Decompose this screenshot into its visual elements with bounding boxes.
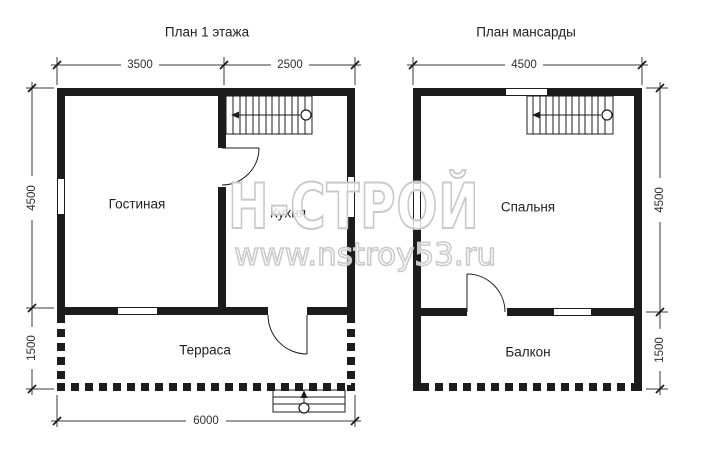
ff-doors: [222, 148, 307, 354]
entry-steps: [273, 390, 345, 413]
ff-interior-wall-lower: [218, 187, 226, 307]
kitchen-label: Кухня: [270, 206, 306, 221]
floor-plan-drawing: План 1 этажа: [0, 0, 701, 450]
ff-dimensions-left: 4500 1500: [25, 82, 54, 395]
ff-dim-2500-label: 2500: [277, 59, 303, 71]
first-floor-walls: [57, 88, 355, 315]
ff-dim-4500-label: 4500: [26, 185, 38, 211]
attic-doors: [467, 274, 505, 312]
entry-steps-start-circle: [299, 403, 309, 413]
ff-dim-1500-label: 1500: [26, 335, 38, 361]
terrace-label: Терраса: [179, 343, 231, 358]
ff-dim-top-extension-lines: [57, 57, 355, 85]
entry-steps-treads: [273, 397, 345, 404]
at-dim-1500-side-label: 1500: [654, 337, 666, 363]
floor-plans-canvas: План 1 этажа: [0, 0, 701, 450]
first-floor-title: План 1 этажа: [165, 25, 250, 40]
entry-steps-direction-arrow-icon: [301, 390, 308, 398]
ff-wall-bottom-right-segment: [307, 307, 347, 315]
attic-plan: План мансарды: [407, 25, 668, 396]
ff-window-right: [348, 177, 355, 218]
ff-dimensions-top: 3500 2500: [51, 57, 361, 85]
at-balcony-door-swing: [467, 274, 505, 312]
at-dim-4500-side-label: 4500: [654, 187, 666, 213]
at-stairs-start-circle: [602, 110, 612, 120]
ff-kitchen-door-swing: [222, 148, 259, 185]
at-dim-4500-top-label: 4500: [511, 59, 537, 71]
at-window-mid: [554, 309, 592, 316]
ff-stairs-direction-arrow-icon: [231, 112, 239, 119]
ff-dim-6000-label: 6000: [193, 415, 219, 427]
balcony-label: Балкон: [505, 345, 550, 360]
at-window-top: [506, 89, 548, 96]
at-window-left: [414, 184, 421, 230]
first-floor-plan: План 1 этажа: [25, 25, 361, 429]
living-room-label: Гостиная: [109, 197, 166, 212]
at-dimensions-right: 4500 1500: [646, 82, 668, 395]
ff-staircase: [226, 96, 312, 134]
ff-wall-top: [57, 88, 355, 96]
ff-window-left: [58, 179, 65, 215]
at-wall-left: [413, 96, 421, 391]
attic-staircase: [527, 96, 613, 134]
at-wall-right: [634, 96, 642, 391]
ff-wall-bottom-left-segment: [65, 307, 268, 315]
ff-terrace-door-swing: [268, 315, 307, 354]
attic-title: План мансарды: [476, 25, 576, 40]
at-dimensions-top: 4500: [407, 57, 648, 85]
at-wall-mid-left-segment: [421, 308, 467, 316]
ff-dim-3500-label: 3500: [127, 59, 153, 71]
ff-stairs-start-circle: [301, 110, 311, 120]
ff-window-bottom: [118, 308, 158, 315]
bedroom-label: Спальня: [501, 200, 555, 215]
ff-interior-wall-upper: [218, 96, 226, 148]
